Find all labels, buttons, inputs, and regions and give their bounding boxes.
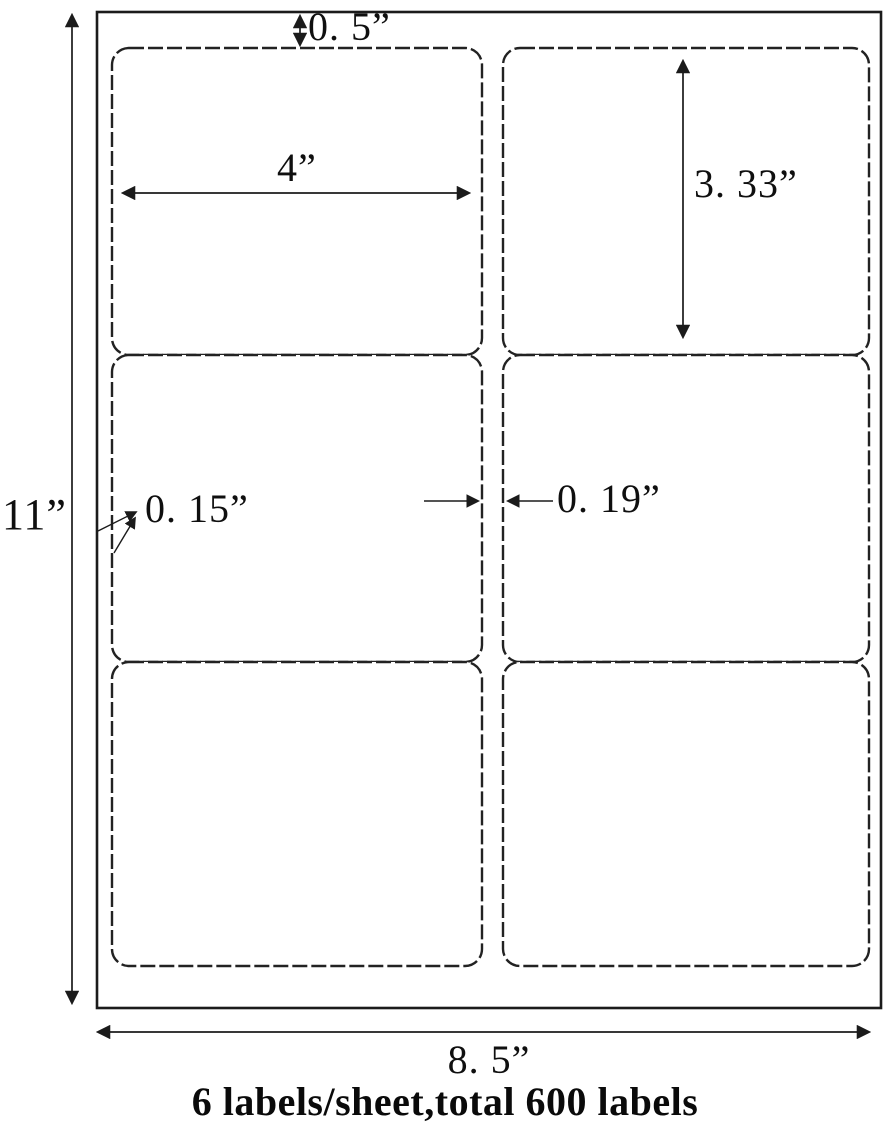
label-cell-r1c1 <box>112 48 482 355</box>
dim-label-label-width: 4” <box>277 148 317 188</box>
dim-label-sheet-width: 8. 5” <box>97 1040 881 1080</box>
dim-label-label-height: 3. 33” <box>694 164 798 204</box>
label-cell-r1c2 <box>503 48 869 355</box>
label-sheet-diagram: 0. 5” 4” 3. 33” 0. 15” 0. 19” 11” 8. 5” … <box>0 0 890 1128</box>
label-cell-r3c2 <box>503 662 869 966</box>
caption-labels-count: 6 labels/sheet,total 600 labels <box>0 1078 890 1125</box>
dim-label-top-margin: 0. 5” <box>308 7 391 47</box>
dim-label-center-gap: 0. 19” <box>557 479 661 519</box>
dim-label-sheet-height: 11” <box>2 493 67 537</box>
label-cell-r3c1 <box>112 662 482 966</box>
dim-label-side-margin: 0. 15” <box>145 489 249 529</box>
